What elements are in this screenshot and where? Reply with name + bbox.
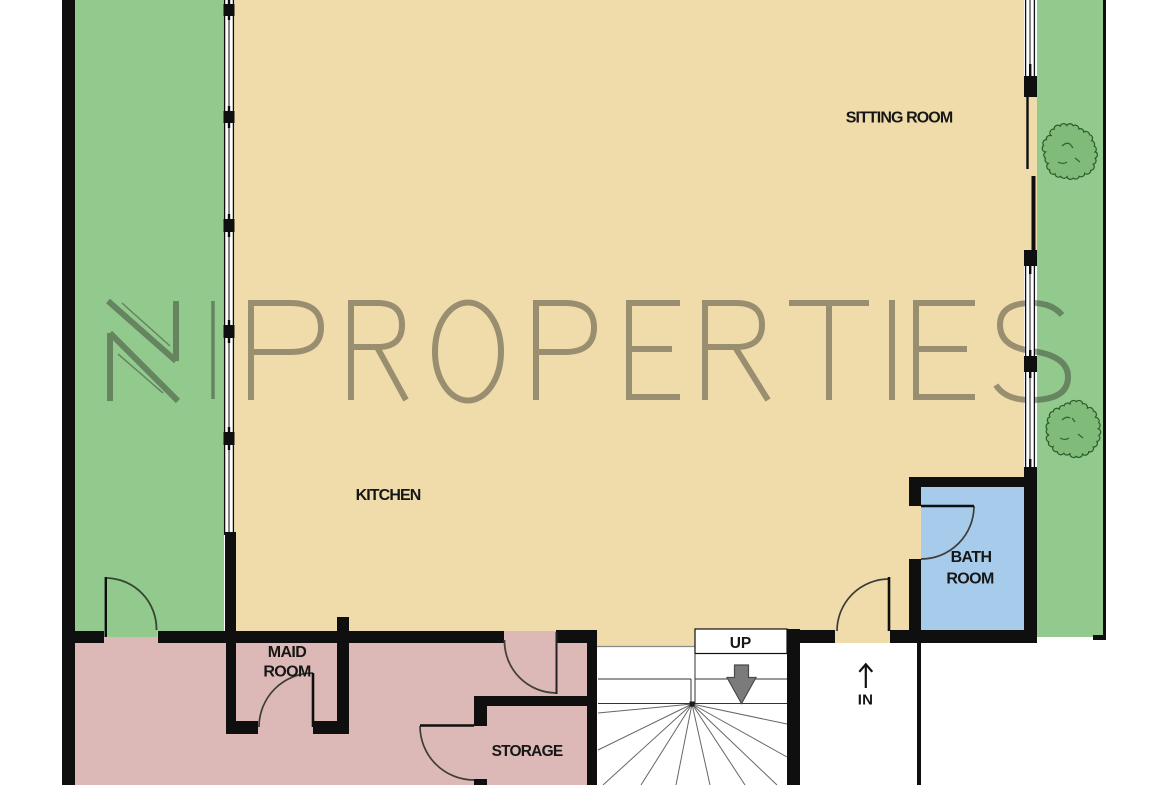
- svg-text:BATH: BATH: [951, 549, 992, 566]
- svg-text:SITTING ROOM: SITTING ROOM: [846, 110, 953, 127]
- svg-text:MAID: MAID: [268, 644, 307, 661]
- svg-text:STORAGE: STORAGE: [492, 743, 563, 760]
- svg-text:IN: IN: [858, 692, 873, 709]
- svg-text:ROOM: ROOM: [946, 571, 994, 588]
- svg-text:ROOM: ROOM: [263, 664, 311, 681]
- svg-text:KITCHEN: KITCHEN: [356, 487, 421, 504]
- svg-text:UP: UP: [730, 635, 752, 652]
